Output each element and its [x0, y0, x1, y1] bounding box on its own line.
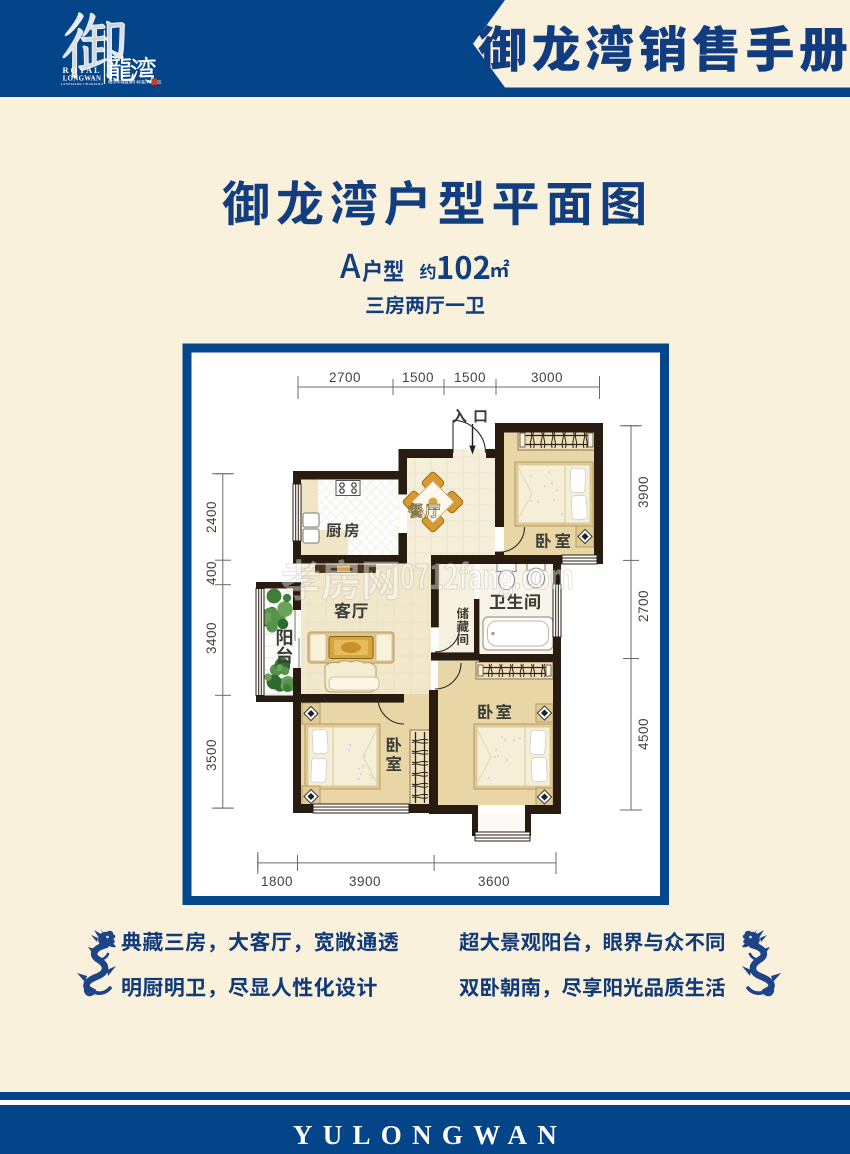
- svg-text:YULONGWAN: YULONGWAN: [293, 1120, 567, 1150]
- svg-text:2700: 2700: [329, 370, 361, 385]
- svg-text:1500: 1500: [402, 370, 434, 385]
- svg-text:1800: 1800: [261, 874, 293, 889]
- svg-text:400: 400: [204, 561, 219, 585]
- svg-text:LANDMARK CHARISMA: LANDMARK CHARISMA: [61, 82, 104, 86]
- svg-text:3500: 3500: [204, 739, 219, 771]
- svg-text:3600: 3600: [478, 874, 510, 889]
- svg-text:3400: 3400: [204, 622, 219, 654]
- svg-text:2400: 2400: [204, 501, 219, 533]
- svg-text:2700: 2700: [636, 590, 651, 622]
- svg-text:3000: 3000: [531, 370, 563, 385]
- svg-text:3900: 3900: [349, 874, 381, 889]
- svg-text:ROYAL: ROYAL: [63, 65, 102, 75]
- svg-text:4500: 4500: [636, 718, 651, 750]
- svg-text:3900: 3900: [636, 476, 651, 508]
- svg-text:1500: 1500: [454, 370, 486, 385]
